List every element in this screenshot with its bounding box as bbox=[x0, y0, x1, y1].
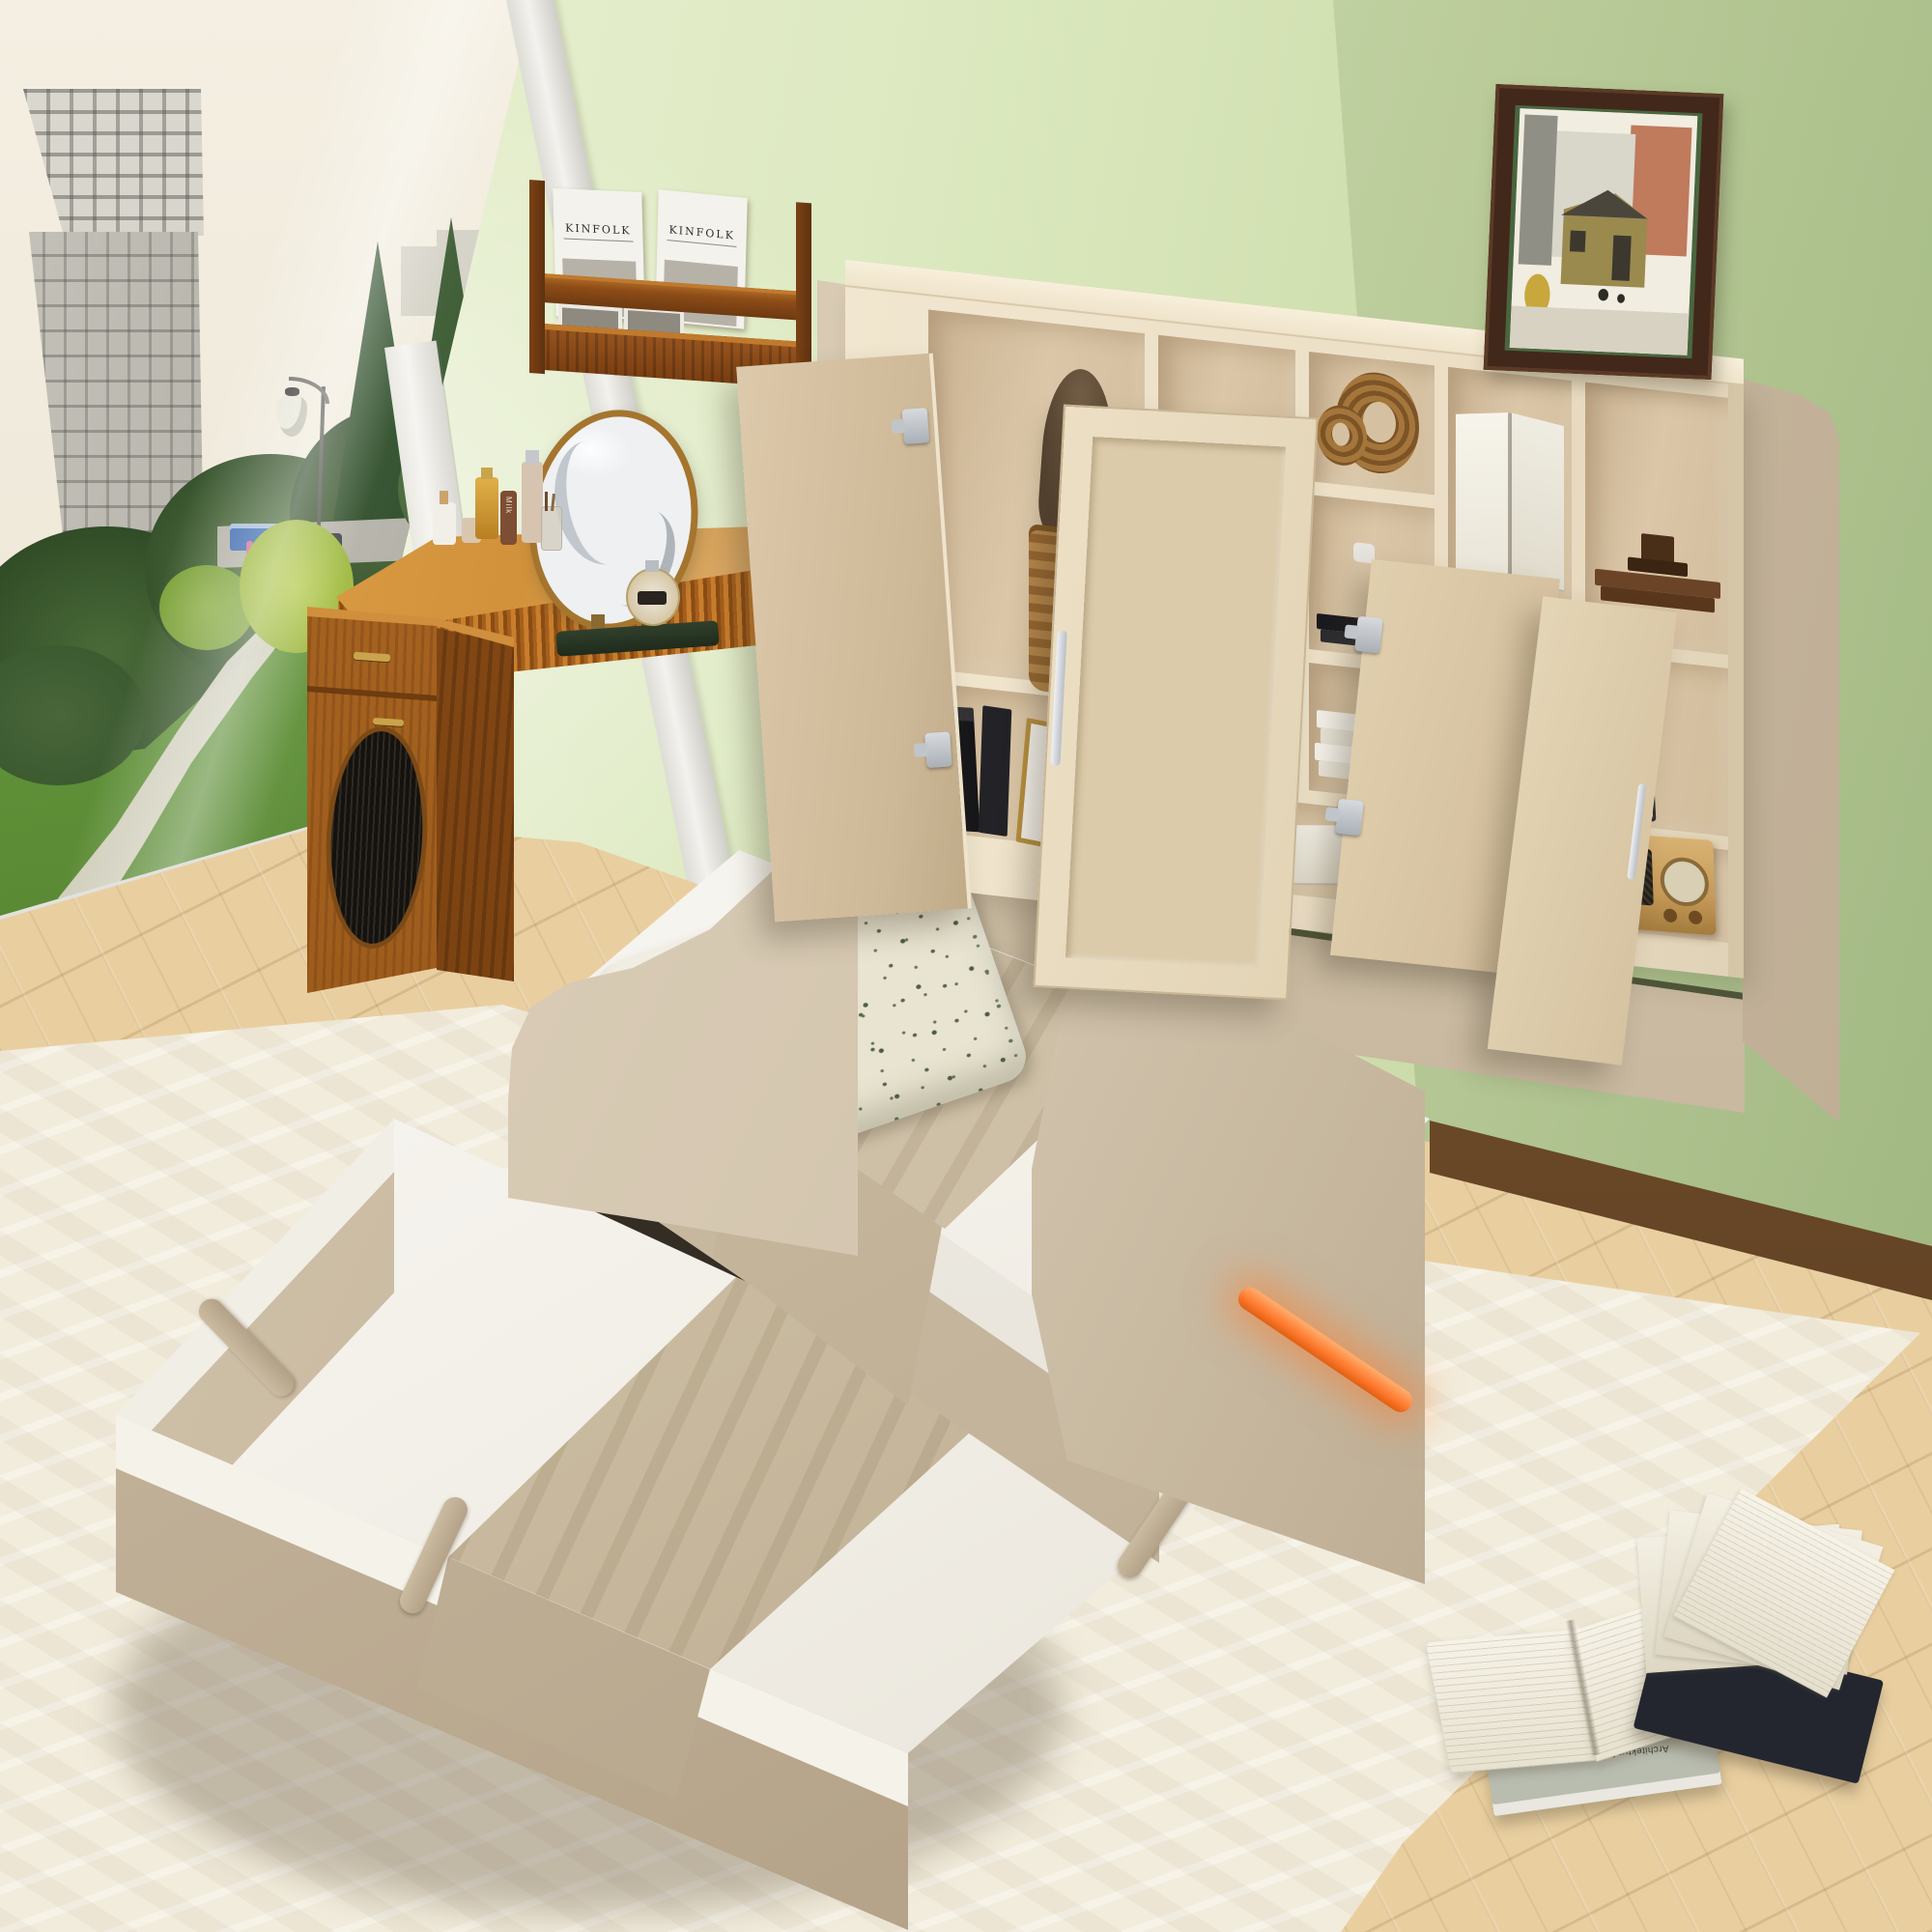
bedroom-scene: KINFOLK KINFOLK bbox=[0, 0, 1932, 1932]
door-hinge bbox=[902, 408, 929, 444]
dropper-cap bbox=[440, 491, 448, 504]
lotion-cap bbox=[526, 450, 539, 464]
black-book bbox=[979, 705, 1012, 837]
watercolor-art bbox=[1510, 108, 1698, 355]
door-handle bbox=[1050, 630, 1066, 765]
perfume-label bbox=[638, 591, 667, 605]
open-book-gutter bbox=[1508, 412, 1512, 586]
door-hinge bbox=[924, 731, 952, 768]
open-book-page bbox=[1510, 412, 1564, 592]
open-book-page bbox=[1456, 412, 1510, 581]
radio-knob bbox=[1663, 908, 1677, 923]
framed-artwork bbox=[1484, 84, 1724, 380]
dropper-bottle bbox=[433, 502, 456, 545]
brush-cup bbox=[541, 506, 562, 551]
cubby-ring bbox=[1309, 352, 1435, 495]
makeup-brush bbox=[545, 492, 548, 511]
magazine-title: KINFOLK bbox=[554, 221, 642, 238]
door-inset-panel bbox=[1065, 437, 1286, 968]
perfume-bottle bbox=[626, 568, 680, 626]
door-hinge bbox=[1335, 799, 1364, 837]
radio-knob bbox=[1689, 910, 1702, 924]
cabinet-door-open-front bbox=[1033, 405, 1318, 1001]
perfume-cap bbox=[645, 560, 659, 572]
cosmetic-tube: Milk bbox=[500, 491, 517, 545]
door-handle bbox=[1627, 783, 1646, 880]
door-hinge bbox=[1354, 616, 1383, 654]
radio-dial bbox=[1660, 856, 1710, 908]
tube-label: Milk bbox=[504, 497, 513, 514]
lotion-bottle bbox=[522, 462, 543, 543]
cabinet-door-open-flat bbox=[736, 354, 972, 923]
street-watercolor bbox=[1510, 108, 1698, 355]
bookcase-right-edge bbox=[1728, 383, 1744, 979]
floor-fanned-book bbox=[1575, 1479, 1917, 1798]
amber-bottle bbox=[475, 477, 498, 539]
shelf-side-post bbox=[529, 180, 545, 374]
amber-bottle-cap bbox=[481, 468, 493, 479]
magazine-rule bbox=[564, 238, 634, 241]
